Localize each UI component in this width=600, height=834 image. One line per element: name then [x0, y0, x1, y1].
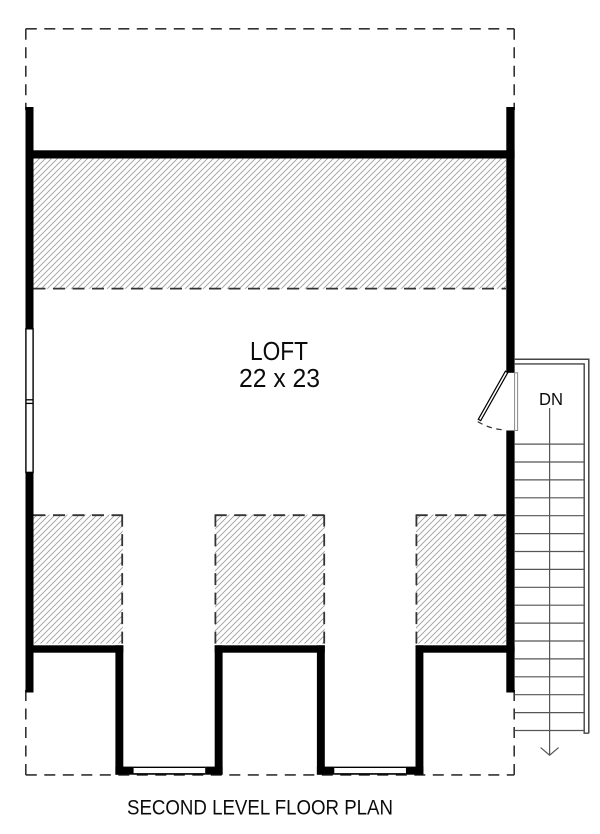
- svg-text:DN: DN: [539, 389, 563, 409]
- svg-text:LOFT: LOFT: [250, 338, 308, 366]
- svg-text:SECOND LEVEL FLOOR PLAN: SECOND LEVEL FLOOR PLAN: [127, 796, 393, 820]
- svg-text:22 x 23: 22 x 23: [239, 365, 320, 393]
